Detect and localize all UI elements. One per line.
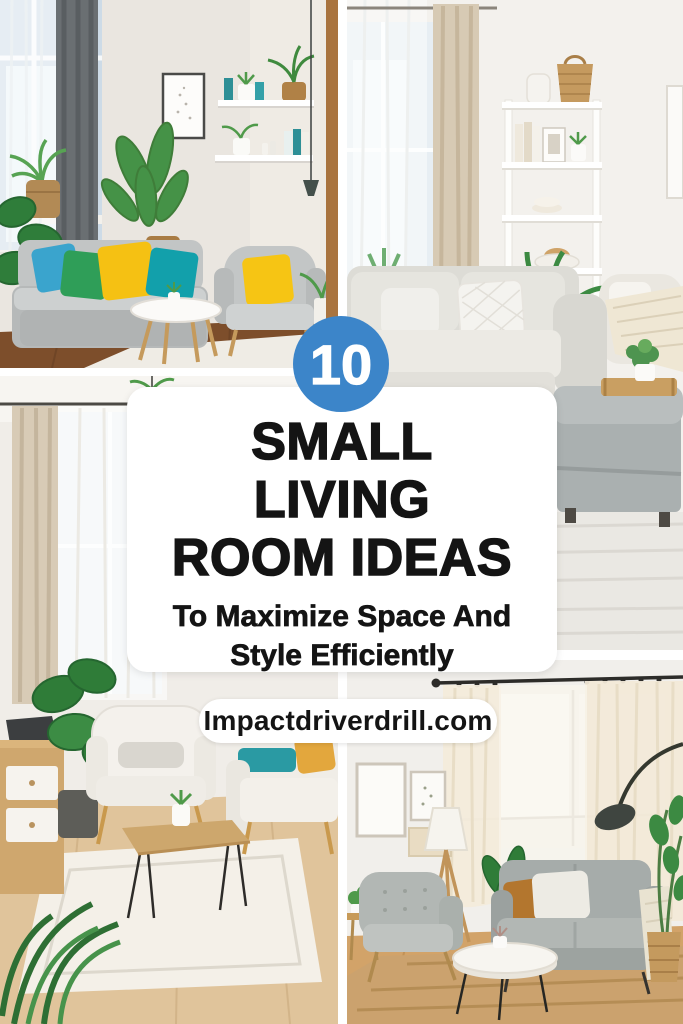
wood-trim (326, 0, 338, 334)
website-pill: Impactdriverdrill.com (199, 699, 497, 743)
ceramic-jar (527, 74, 550, 104)
dark-drape (56, 0, 98, 252)
sheer-curtain (347, 0, 427, 308)
title-line-3: ROOM IDEAS (172, 529, 512, 587)
website-label: Impactdriverdrill.com (204, 705, 493, 737)
bowl-stack (532, 197, 562, 213)
count-badge: 10 (293, 316, 389, 412)
subtitle: To Maximize Space And Style Efficiently (173, 597, 511, 675)
pinterest-pin-graphic: SMALL LIVING ROOM IDEAS To Maximize Spac… (0, 0, 683, 1024)
subtitle-line-2: Style Efficiently (173, 636, 511, 675)
count-badge-number: 10 (310, 332, 372, 397)
subtitle-line-1: To Maximize Space And (173, 597, 511, 636)
title-line-2: LIVING (254, 471, 430, 529)
sofa (347, 266, 607, 402)
framed-art-partial (667, 86, 683, 198)
books (515, 122, 565, 162)
title-line-1: SMALL (251, 413, 433, 471)
photo-top-left-scene (0, 0, 338, 368)
title-card: SMALL LIVING ROOM IDEAS To Maximize Spac… (127, 387, 557, 672)
photo-top-left (0, 0, 338, 368)
